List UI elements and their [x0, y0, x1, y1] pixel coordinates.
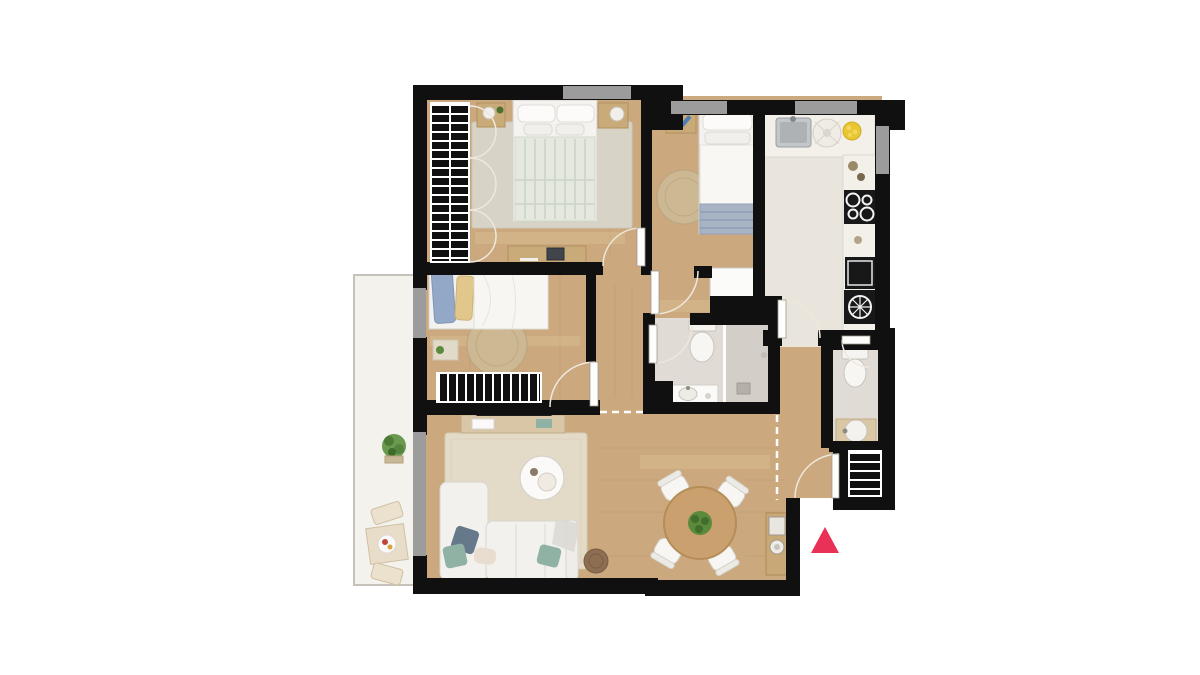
keyboard-icon — [520, 258, 538, 261]
pillow-small — [524, 124, 552, 135]
window-bedroom-main — [563, 86, 631, 99]
duvet-white — [700, 145, 755, 205]
pillow — [557, 105, 594, 122]
shower-fixture-icon — [761, 352, 767, 358]
wardrobe-bedroom-main — [430, 102, 470, 263]
white-closet — [710, 268, 756, 298]
sink-basin — [780, 122, 807, 143]
food-icon-2 — [388, 545, 393, 550]
pouf — [584, 549, 608, 573]
shower-drain — [737, 383, 750, 394]
plant-icon — [436, 346, 444, 354]
console-frame — [769, 517, 785, 535]
floor-plan-canvas — [0, 0, 1200, 675]
pillow-small — [556, 124, 584, 135]
fruit-plate — [843, 122, 861, 140]
window-kitchen-top — [795, 101, 857, 114]
console-knob-inner — [774, 544, 780, 550]
balcony-sliding-door — [413, 432, 426, 556]
wc-door-leaf — [842, 336, 870, 344]
pillow-yellow — [455, 276, 474, 321]
pillow — [518, 105, 555, 122]
floor-plan-drawing — [0, 0, 1200, 675]
door-leaf — [637, 228, 645, 266]
faucet-icon — [790, 116, 796, 122]
window-bedroom-second — [413, 288, 426, 338]
soap-icon — [705, 393, 711, 399]
door-leaf — [590, 362, 598, 406]
window-bedroom-single — [671, 101, 727, 114]
foot-blanket — [700, 204, 755, 234]
vanity-tap-icon — [686, 386, 690, 390]
door-leaf — [778, 300, 786, 338]
door-leaf — [649, 325, 657, 363]
basin-tap-icon — [843, 429, 848, 434]
door-leaf — [651, 271, 659, 314]
wardrobe-bedroom-second — [436, 372, 542, 403]
console-deco-teal — [536, 419, 552, 428]
lamp-icon — [483, 107, 495, 119]
entrance-door-leaf — [832, 454, 839, 498]
lamp-icon-2 — [610, 107, 624, 121]
pillow — [703, 114, 752, 130]
food-icon — [382, 539, 388, 545]
plant-pot — [385, 456, 403, 463]
pillow-small — [705, 132, 750, 144]
window-kitchen-side — [876, 126, 889, 174]
wardrobe-divider — [449, 104, 451, 261]
jar-icon-2 — [857, 173, 865, 181]
plant-pot-icon — [497, 107, 504, 114]
plant-leaf — [388, 448, 396, 456]
cup-icon-2 — [530, 468, 538, 476]
round-basin — [845, 420, 867, 442]
pillow-blue — [431, 270, 456, 323]
table-tray — [538, 473, 556, 491]
shower-glass-partition — [723, 320, 726, 406]
console-deco — [472, 419, 494, 429]
cushion-teal — [442, 543, 468, 569]
hallway-entry-closet — [848, 450, 882, 497]
toilet-bowl — [690, 332, 714, 362]
laptop-icon — [547, 248, 564, 260]
jar-icon — [848, 161, 858, 171]
bowl-icon — [854, 236, 862, 244]
plant-leaf — [384, 436, 394, 446]
oven — [845, 257, 875, 289]
